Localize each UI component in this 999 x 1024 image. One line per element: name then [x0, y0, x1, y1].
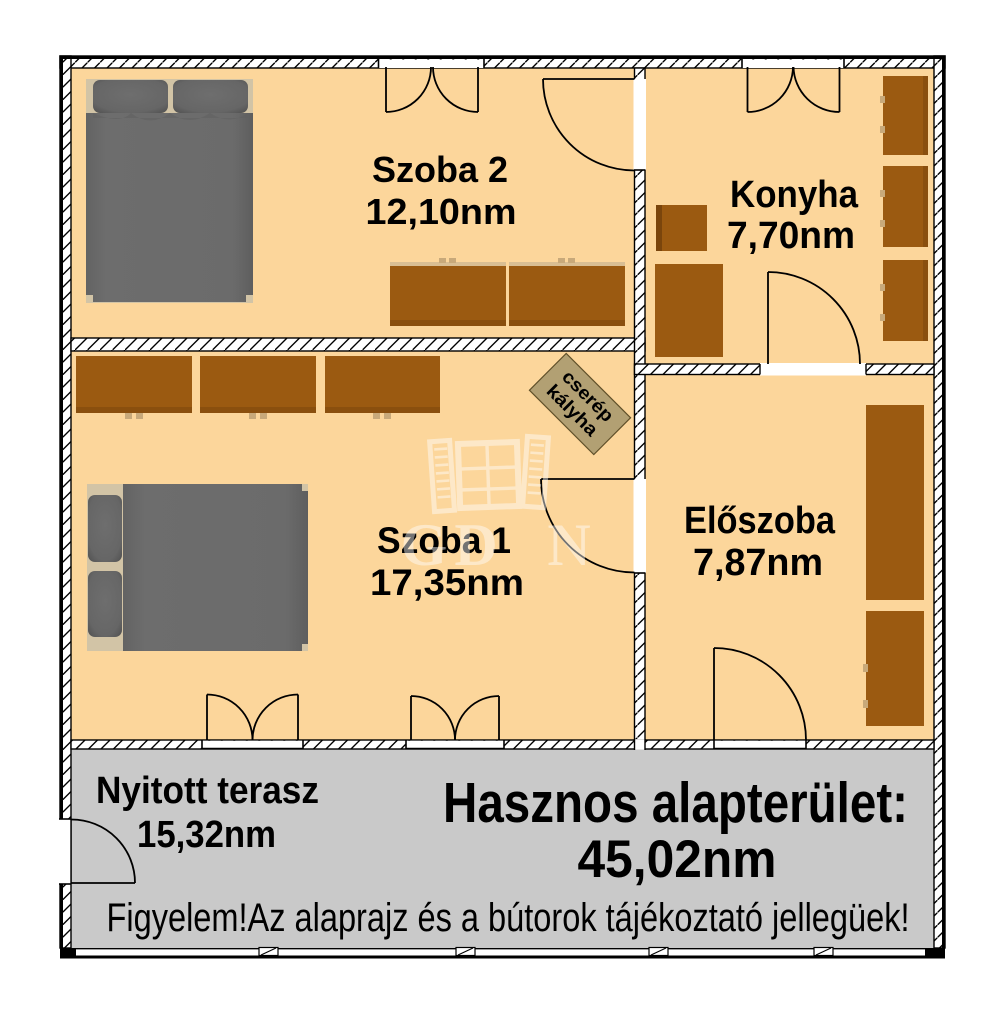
svg-text:G: G — [401, 512, 448, 578]
svg-text:Nyitott terasz: Nyitott terasz — [96, 770, 319, 812]
svg-text:Előszoba: Előszoba — [684, 500, 836, 542]
svg-text:12,10nm: 12,10nm — [366, 191, 517, 232]
svg-text:Szoba 2: Szoba 2 — [372, 149, 508, 190]
svg-text:7,87nm: 7,87nm — [693, 542, 823, 584]
svg-text:45,02nm: 45,02nm — [578, 830, 777, 889]
svg-text:N: N — [547, 512, 590, 578]
svg-text:Hasznos alapterület:: Hasznos alapterület: — [443, 771, 908, 835]
svg-text:Konyha: Konyha — [730, 174, 859, 216]
svg-text:Figyelem!Az alaprajz és a búto: Figyelem!Az alaprajz és a bútorok tájéko… — [107, 896, 910, 940]
svg-text:D: D — [454, 512, 497, 578]
svg-text:15,32nm: 15,32nm — [137, 814, 276, 856]
svg-text:7,70nm: 7,70nm — [727, 215, 855, 257]
